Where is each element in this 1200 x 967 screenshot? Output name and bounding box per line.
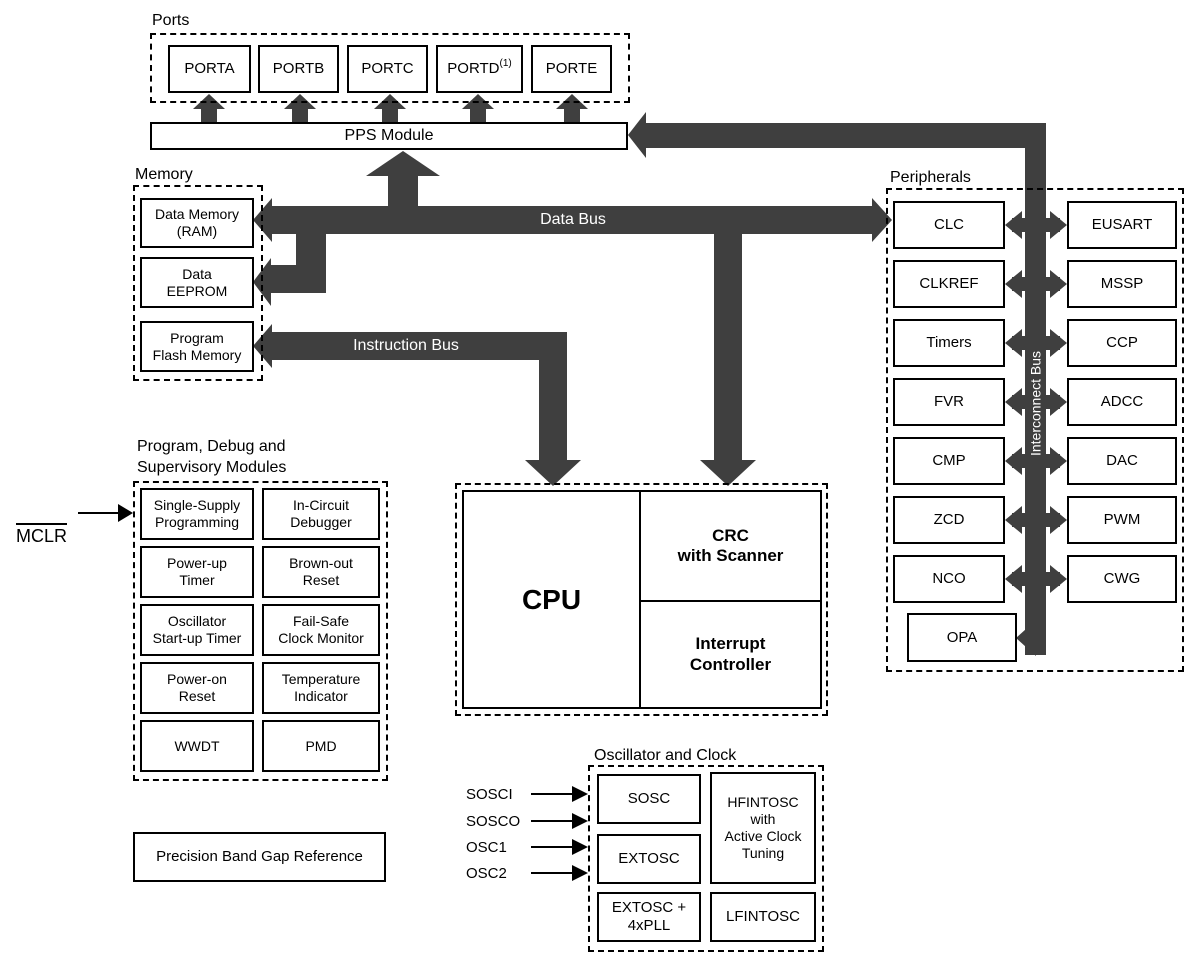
pin-arrowhead — [572, 813, 588, 829]
debug-box-osc-startup: Oscillator Start-up Timer — [140, 604, 254, 656]
port-box-portd-label: PORTD — [447, 60, 499, 78]
pps-module-box: PPS Module — [150, 122, 628, 150]
mclr-arrowhead — [118, 504, 133, 522]
peripheral-box-mssp: MSSP — [1067, 260, 1177, 308]
instruction-bus-label: Instruction Bus — [331, 332, 481, 360]
osc-box-lfintosc: LFINTOSC — [710, 892, 816, 942]
port-box-porte: PORTE — [531, 45, 612, 93]
peripheral-box-timers: Timers — [893, 319, 1005, 367]
osc-box-hfintosc: HFINTOSC with Active Clock Tuning — [710, 772, 816, 884]
debug-box-pmd: PMD — [262, 720, 380, 772]
pps-bus-arrowhead — [366, 151, 440, 176]
osc-section-label: Oscillator and Clock — [594, 746, 736, 767]
peripheral-box-dac: DAC — [1067, 437, 1177, 485]
port-box-portb: PORTB — [258, 45, 339, 93]
memory-box-eeprom: Data EEPROM — [140, 257, 254, 308]
peripheral-box-nco: NCO — [893, 555, 1005, 603]
peripheral-box-ccp: CCP — [1067, 319, 1177, 367]
pps-bus-shaft — [388, 174, 418, 210]
pin-arrow-line — [531, 846, 573, 848]
debug-box-single-supply: Single-Supply Programming — [140, 488, 254, 540]
memory-box-ram: Data Memory (RAM) — [140, 198, 254, 248]
interconnect-bus-label: Interconnect Bus — [1026, 328, 1047, 480]
debug-box-in-circuit: In-Circuit Debugger — [262, 488, 380, 540]
memory-box-flash: Program Flash Memory — [140, 321, 254, 372]
osc-box-extosc-pll: EXTOSC + 4xPLL — [597, 892, 701, 942]
peripheral-box-cmp: CMP — [893, 437, 1005, 485]
port-box-portd: PORTD(1) — [436, 45, 523, 93]
peripheral-box-clc: CLC — [893, 201, 1005, 249]
debug-box-power-on: Power-on Reset — [140, 662, 254, 714]
pin-label-osc2: OSC2 — [466, 864, 507, 884]
peripherals-section-label: Peripherals — [890, 168, 971, 189]
osc-box-sosc: SOSC — [597, 774, 701, 824]
debug-box-power-up-timer: Power-up Timer — [140, 546, 254, 598]
peripheral-box-eusart: EUSART — [1067, 201, 1177, 249]
data-bus-crc-branch — [714, 233, 742, 462]
peripheral-box-cwg: CWG — [1067, 555, 1177, 603]
memory-section-label: Memory — [135, 165, 193, 186]
peripheral-box-zcd: ZCD — [893, 496, 1005, 544]
mclr-text: MCLR — [16, 523, 67, 546]
pin-arrow-line — [531, 820, 573, 822]
mclr-pin-label: MCLR — [16, 502, 67, 549]
port-box-porta: PORTA — [168, 45, 251, 93]
ports-section-label: Ports — [152, 11, 189, 32]
bandgap-box: Precision Band Gap Reference — [133, 832, 386, 882]
pin-arrowhead — [572, 786, 588, 802]
block-diagram: Ports PORTA PORTB PORTC PORTD(1) PORTE P… — [0, 0, 1200, 967]
interconnect-arrowhead-to-pps — [628, 112, 646, 158]
pin-arrowhead — [572, 839, 588, 855]
debug-box-fail-safe: Fail-Safe Clock Monitor — [262, 604, 380, 656]
debug-box-wwdt: WWDT — [140, 720, 254, 772]
cpu-divider-horizontal — [641, 600, 820, 602]
crc-with-scanner-cell: CRC with Scanner — [643, 494, 818, 598]
data-bus-eeprom-branch-vertical — [296, 233, 326, 293]
peripheral-box-pwm: PWM — [1067, 496, 1177, 544]
data-bus-eeprom-branch-horizontal — [270, 265, 300, 293]
pin-label-osc1: OSC1 — [466, 838, 507, 858]
port-box-portc: PORTC — [347, 45, 428, 93]
peripheral-box-fvr: FVR — [893, 378, 1005, 426]
data-bus-label: Data Bus — [513, 206, 633, 234]
instruction-bus-vertical — [539, 332, 567, 462]
debug-box-temperature: Temperature Indicator — [262, 662, 380, 714]
peripheral-box-opa: OPA — [907, 613, 1017, 662]
pin-arrow-line — [531, 793, 573, 795]
debug-box-brown-out: Brown-out Reset — [262, 546, 380, 598]
peripheral-box-clkref: CLKREF — [893, 260, 1005, 308]
peripheral-box-adcc: ADCC — [1067, 378, 1177, 426]
pin-arrowhead — [572, 865, 588, 881]
cpu-label-cell: CPU — [466, 494, 637, 705]
interrupt-controller-cell: Interrupt Controller — [643, 604, 818, 705]
pin-label-sosci: SOSCI — [466, 785, 513, 805]
mclr-arrow-line — [78, 512, 120, 514]
portd-footnote: (1) — [500, 58, 512, 70]
osc-box-extosc: EXTOSC — [597, 834, 701, 884]
pin-label-sosco: SOSCO — [466, 812, 520, 832]
pin-arrow-line — [531, 872, 573, 874]
pps-interconnect-link-horizontal — [645, 123, 1046, 148]
debug-section-label: Program, Debug and Supervisory Modules — [137, 437, 286, 479]
